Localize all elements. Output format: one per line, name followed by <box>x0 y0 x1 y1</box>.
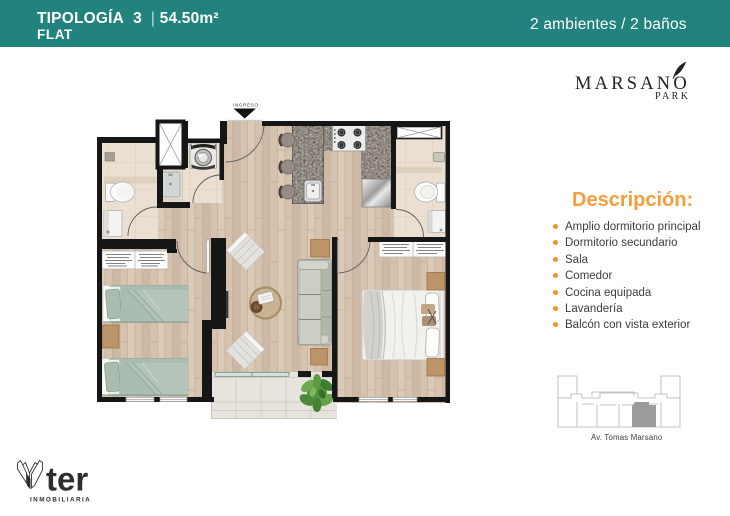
svg-text:INGRESO: INGRESO <box>233 103 259 109</box>
